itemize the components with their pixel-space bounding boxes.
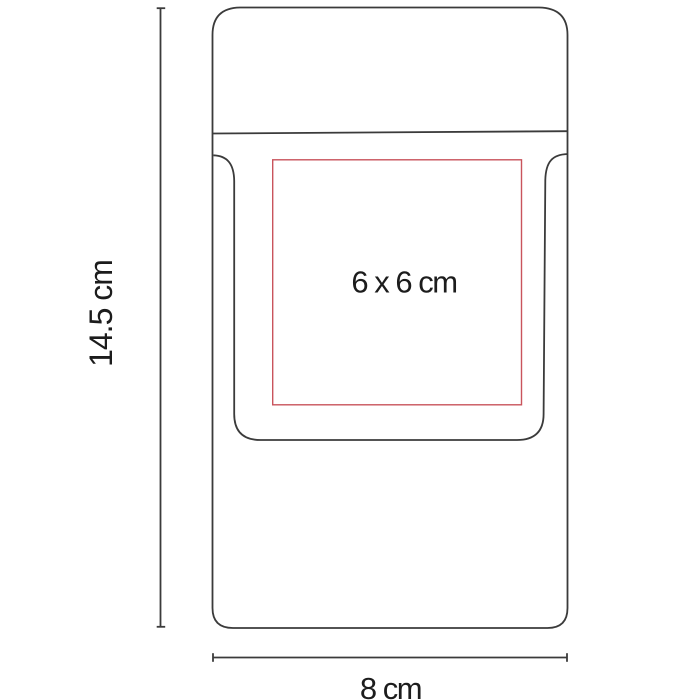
svg-text:14.5 cm: 14.5 cm <box>83 260 119 367</box>
svg-text:6 x 6 cm: 6 x 6 cm <box>351 265 456 300</box>
svg-text:8 cm: 8 cm <box>360 671 421 700</box>
